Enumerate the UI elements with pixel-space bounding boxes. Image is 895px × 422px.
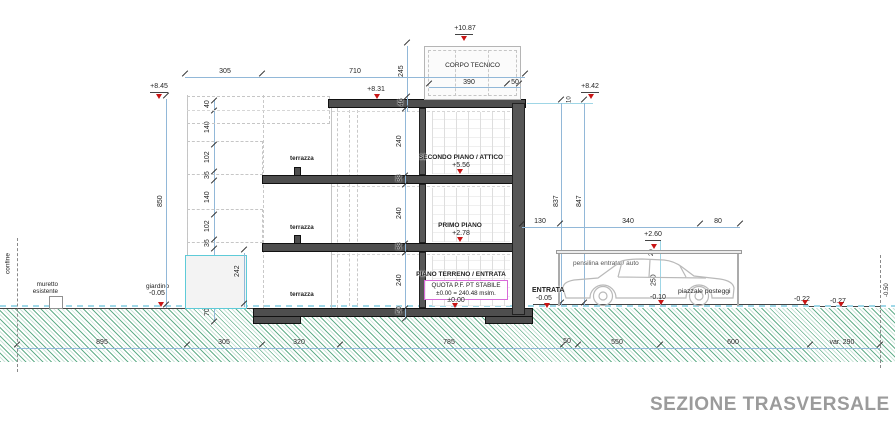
level-marker-triangle <box>802 300 808 305</box>
terrazza-label-terreno: terrazza <box>290 291 326 298</box>
corpo-tecnico-inner-dashed <box>428 50 517 96</box>
dim-label: 50 <box>394 302 405 319</box>
elevation-line <box>455 34 473 35</box>
dim-chain-line-interior <box>405 108 406 320</box>
level-marker-triangle <box>658 300 664 305</box>
elevation-text: +8.42 <box>574 83 606 91</box>
corpo-tecnico-label: CORPO TECNICO <box>430 62 515 69</box>
glazing-hidden-line <box>337 108 338 308</box>
dim-label: 600 <box>714 339 752 347</box>
terrazza-label-secondo: terrazza <box>290 155 326 162</box>
dim-label: 390 <box>450 79 488 87</box>
entrata-quota: -0.05 <box>536 295 562 303</box>
floor-label-primo: PRIMO PIANO <box>410 222 510 229</box>
dim-label: 38 <box>394 239 405 254</box>
dim-label: 847 <box>574 188 585 214</box>
corpo-tecnico-hidden-line <box>488 50 489 96</box>
dim-label: 38 <box>394 171 405 186</box>
dim-label: 130 <box>526 218 554 226</box>
dim-label: var. 290 <box>816 339 868 347</box>
dim-label: 50 <box>558 338 576 346</box>
dim-label: 895 <box>82 339 122 347</box>
foundation-foot-right <box>485 316 533 324</box>
dim-label: 305 <box>205 68 245 76</box>
interior-wall <box>419 108 426 175</box>
dim-label: 340 <box>610 218 646 226</box>
level-marker-triangle <box>544 303 550 308</box>
dim-label: 710 <box>335 68 375 76</box>
dim-line-corpo-height <box>407 46 408 112</box>
dim-tick <box>163 92 169 98</box>
boundary-line-right <box>880 255 881 368</box>
bottom-dim-line <box>17 348 880 349</box>
dim-tick <box>697 220 703 226</box>
floor-label-terreno: PIANO TERRENO / ENTRATA <box>398 271 524 278</box>
dim-label: 785 <box>430 339 468 347</box>
existing-wall-label-line2: esistente <box>14 288 58 295</box>
boundary-line-left <box>17 238 18 372</box>
sezione-trasversale-drawing: 895 305 320 785 50 550 600 var. 290 conf… <box>0 0 895 422</box>
dim-label: 550 <box>598 339 636 347</box>
dim-tick <box>259 70 265 76</box>
terrace-railing-primo <box>187 209 263 243</box>
piazzale-label: piazzale posteggi <box>678 288 731 296</box>
dim-tick <box>737 220 743 226</box>
elevation-text: +10.87 <box>448 25 482 33</box>
roof-slab <box>328 99 526 108</box>
dim-label: 850 <box>155 188 166 214</box>
dim-label: 50 <box>506 79 524 87</box>
dim-label: 240 <box>394 201 405 225</box>
boundary-quota-right: -0.50 <box>882 278 892 302</box>
level-marker-triangle <box>588 94 594 99</box>
elevation-text: +8.31 <box>360 86 392 94</box>
glazing-line <box>331 108 332 308</box>
roof-parapet-inner-line <box>187 110 330 111</box>
dim-tick <box>182 70 188 76</box>
hidden-line <box>349 110 350 306</box>
terrazza-label-primo: terrazza <box>290 224 326 231</box>
garden-quota: -0.05 <box>149 290 175 298</box>
dim-label: 240 <box>394 129 405 153</box>
quota-box-line1: QUOTA P.F. PT STABILE <box>428 282 504 290</box>
car-illustration <box>556 250 742 307</box>
dim-tick <box>241 246 247 252</box>
dim-label: 837 <box>551 188 562 214</box>
dim-tick <box>558 96 564 102</box>
drawing-title: SEZIONE TRASVERSALE <box>650 394 890 416</box>
exterior-wall-right <box>512 103 525 315</box>
pensilina-dim-line <box>522 227 740 228</box>
level-marker-triangle <box>457 237 463 242</box>
elevation-text: +2.60 <box>638 231 668 239</box>
floor-label-secondo: SECONDO PIANO / ATTICO <box>398 154 524 161</box>
existing-low-wall <box>49 296 63 309</box>
level-marker-triangle <box>452 303 458 308</box>
hidden-line <box>357 110 358 306</box>
dim-tick <box>404 39 410 45</box>
elevation-line <box>645 240 661 241</box>
entrata-label: ENTRATA <box>532 287 568 295</box>
level-marker-triangle <box>838 302 844 307</box>
existing-wall-label: muretto esistente <box>14 281 58 295</box>
elevation-line <box>581 92 599 93</box>
dim-label: 320 <box>280 339 318 347</box>
boundary-label-left: confine <box>3 244 13 284</box>
dim-line-242 <box>244 253 245 307</box>
dim-label: 242 <box>232 258 243 284</box>
slab-upturn <box>294 235 301 244</box>
level-marker-triangle <box>156 94 162 99</box>
top-dim-line <box>185 77 525 78</box>
slab-upturn <box>294 167 301 176</box>
dim-line-850 <box>166 99 167 308</box>
dim-line-corpo <box>429 87 521 88</box>
dim-tick <box>557 220 563 226</box>
dim-label: 140 <box>202 187 213 207</box>
interior-wall <box>419 184 426 243</box>
dim-tick <box>581 96 587 102</box>
terrace-railing-secondo <box>187 141 263 175</box>
dim-label: 80 <box>704 218 732 226</box>
level-marker-triangle <box>457 169 463 174</box>
corpo-tecnico-hidden-line <box>455 50 456 96</box>
elevation-line <box>150 92 168 93</box>
level-marker-triangle <box>374 94 380 99</box>
elevation-text: +8.45 <box>143 83 175 91</box>
dim-label: 245 <box>396 58 407 84</box>
foundation-foot-left <box>253 316 301 324</box>
dim-label: 305 <box>204 339 244 347</box>
dim-label: 10 <box>565 94 574 106</box>
dim-tick <box>522 70 528 76</box>
level-marker-triangle <box>461 36 467 41</box>
facade-hidden-line <box>263 95 264 308</box>
